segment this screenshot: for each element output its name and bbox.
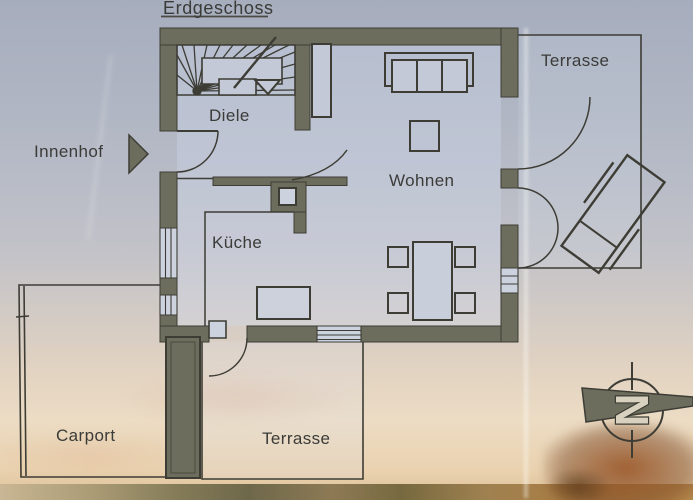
room-label-kueche: Küche — [212, 233, 262, 253]
wall-right-top — [501, 28, 518, 97]
wall-top — [160, 28, 510, 45]
wall-right-lower — [501, 293, 518, 342]
window-left-2 — [160, 295, 177, 315]
kitchen-door-leaf — [209, 321, 226, 338]
wall-right-mullion — [501, 169, 518, 188]
dining-chair — [388, 247, 408, 267]
page-title: Erdgeschoss — [163, 0, 274, 19]
floor-plan-drawing: N — [0, 0, 693, 500]
floor-plan-page: N Erdgeschoss Terrasse Innenhof Diele Wo… — [0, 0, 693, 500]
wall-bottom-b — [247, 326, 317, 342]
room-label-diele: Diele — [209, 106, 250, 126]
sofa-cushions — [392, 60, 467, 92]
wall-stair-wohnen — [295, 45, 310, 130]
wall-left-mid — [160, 172, 177, 228]
dining-table — [413, 242, 452, 320]
room-label-terrasse-top: Terrasse — [541, 51, 609, 71]
terrace-door-arc-upper — [518, 97, 590, 169]
entrance-door-arc — [177, 131, 218, 172]
wall-right-mid — [501, 225, 518, 268]
stair-direction-arrow-icon — [255, 80, 280, 94]
staircase — [177, 37, 295, 95]
stair-lower-flight — [219, 79, 256, 95]
compass-north-icon: N — [582, 362, 693, 458]
window-left-1 — [160, 228, 177, 278]
terrace-door-arc-lower — [518, 188, 558, 268]
room-label-innenhof: Innenhof — [34, 142, 103, 162]
room-label-terrasse-bottom: Terrasse — [262, 429, 330, 449]
kitchen-door-arc — [209, 338, 247, 376]
dining-chair — [388, 293, 408, 313]
wall-bottom-c — [361, 326, 515, 342]
window-right — [501, 268, 518, 293]
stair-walk-line-start-dot — [193, 87, 201, 95]
wall-left-upper — [160, 45, 177, 131]
compass-north-letter: N — [606, 393, 658, 426]
tall-cabinet — [312, 44, 331, 117]
wall-left-pier — [160, 278, 177, 295]
room-label-carport: Carport — [56, 426, 116, 446]
room-label-wohnen: Wohnen — [389, 171, 454, 191]
diele-wohnen-door-arc — [292, 150, 347, 180]
window-bottom — [317, 326, 361, 342]
sun-lounger — [556, 151, 670, 277]
terrace-bottom-outline — [202, 342, 363, 479]
coffee-table — [410, 121, 439, 151]
dining-chair — [455, 293, 475, 313]
chimney-flue — [279, 188, 296, 205]
kitchen-island — [257, 287, 310, 319]
carport-outline — [16, 285, 166, 477]
dining-chair — [455, 247, 475, 267]
entrance-arrow-icon — [129, 135, 148, 173]
